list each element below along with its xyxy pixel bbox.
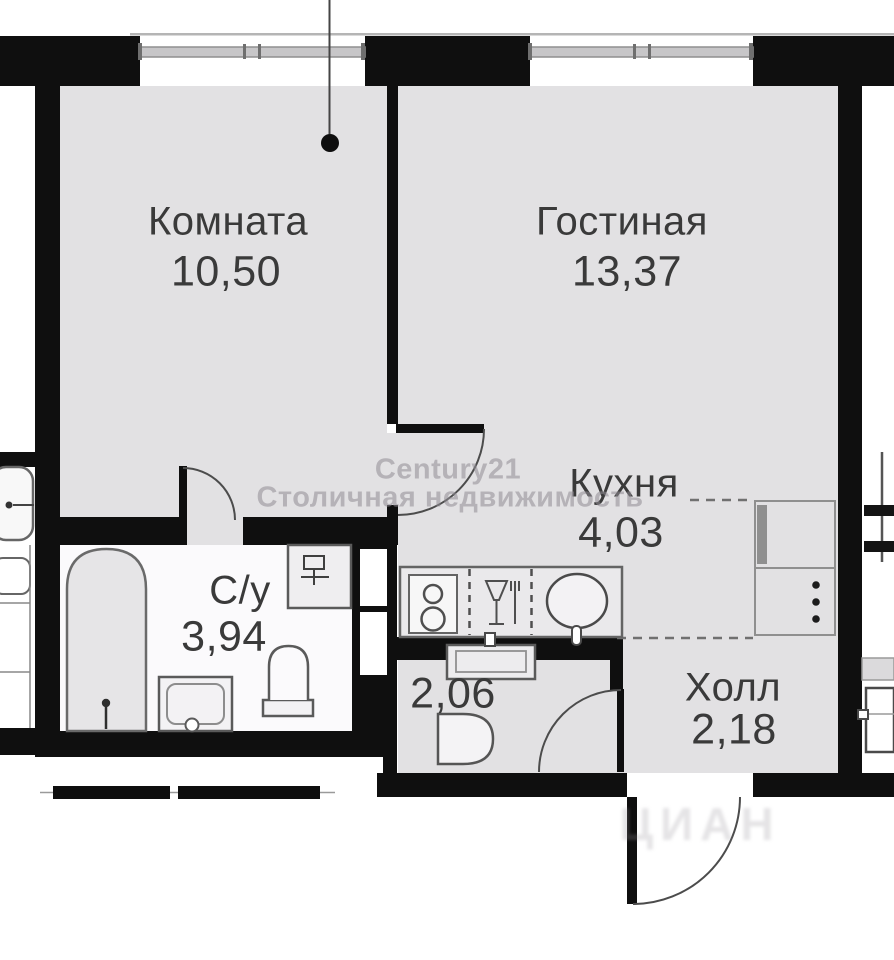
- watermark-portal: ЦИАН: [619, 797, 780, 851]
- area-komnata: 10,50: [171, 248, 281, 297]
- neighbor-right-fixtures: [858, 452, 894, 752]
- wall-top-right: [753, 36, 894, 86]
- wall-top-mid: [365, 36, 530, 86]
- shaft-opening-bottom: [360, 612, 387, 675]
- label-komnata: Комната: [148, 200, 308, 245]
- area-206: 2,06: [410, 670, 496, 719]
- area-kuhnya: 4,03: [578, 509, 664, 558]
- door-leaf-su: [179, 466, 187, 520]
- wall-su-top-right: [243, 517, 397, 545]
- door-leaf-206: [617, 689, 624, 772]
- wall-kitchen-206: [390, 637, 617, 660]
- wall-holl-bottom: [753, 773, 894, 797]
- wall-partition: [387, 86, 398, 424]
- watermark-agency-line2: Столичная недвижимость: [256, 482, 643, 515]
- window-1: [138, 43, 365, 60]
- neighbor-left-fixtures: [0, 467, 34, 728]
- doorway-patch-bathroom: [187, 517, 243, 545]
- label-holl: Холл: [685, 666, 781, 711]
- label-su: С/у: [209, 569, 271, 614]
- area-su: 3,94: [181, 613, 267, 662]
- wall-right: [838, 36, 862, 797]
- wall-su-top-left: [60, 517, 187, 545]
- wall-neighbor-left-divider: [0, 452, 35, 467]
- area-holl: 2,18: [691, 706, 777, 755]
- label-gostinaya: Гостиная: [536, 200, 708, 245]
- wall-206-endcap: [610, 637, 623, 690]
- floor-plan: Комната 10,50 Гостиная 13,37 Кухня 4,03 …: [0, 0, 894, 960]
- wall-top-left: [0, 36, 140, 86]
- area-gostinaya: 13,37: [572, 248, 682, 297]
- door-leaf-room: [396, 424, 484, 433]
- wall-su-bottom: [35, 731, 377, 757]
- shaft-opening-top: [360, 549, 387, 606]
- wall-206-bottom: [377, 773, 627, 797]
- window-2: [528, 43, 753, 60]
- corridor-walls: [40, 786, 335, 799]
- wall-left: [35, 86, 60, 755]
- room-komnata-floor: [60, 86, 387, 517]
